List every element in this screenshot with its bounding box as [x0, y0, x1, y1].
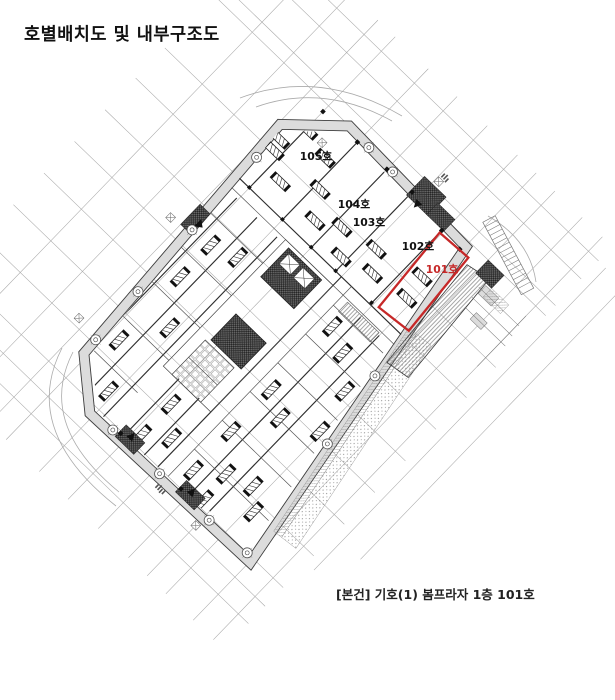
unit-label-103: 103호: [353, 215, 386, 229]
caption: [본건] 기호(1) 봄프라자 1층 101호: [336, 584, 535, 603]
unit-label-101-subject: 101호: [426, 262, 459, 276]
unit-label-105: 105호: [300, 149, 333, 163]
appraisal-floorplan-page: 호별배치도 및 내부구조도: [0, 0, 615, 700]
unit-label-104: 104호: [338, 197, 371, 211]
building-group: [0, 0, 615, 674]
unit-label-102: 102호: [402, 239, 435, 253]
